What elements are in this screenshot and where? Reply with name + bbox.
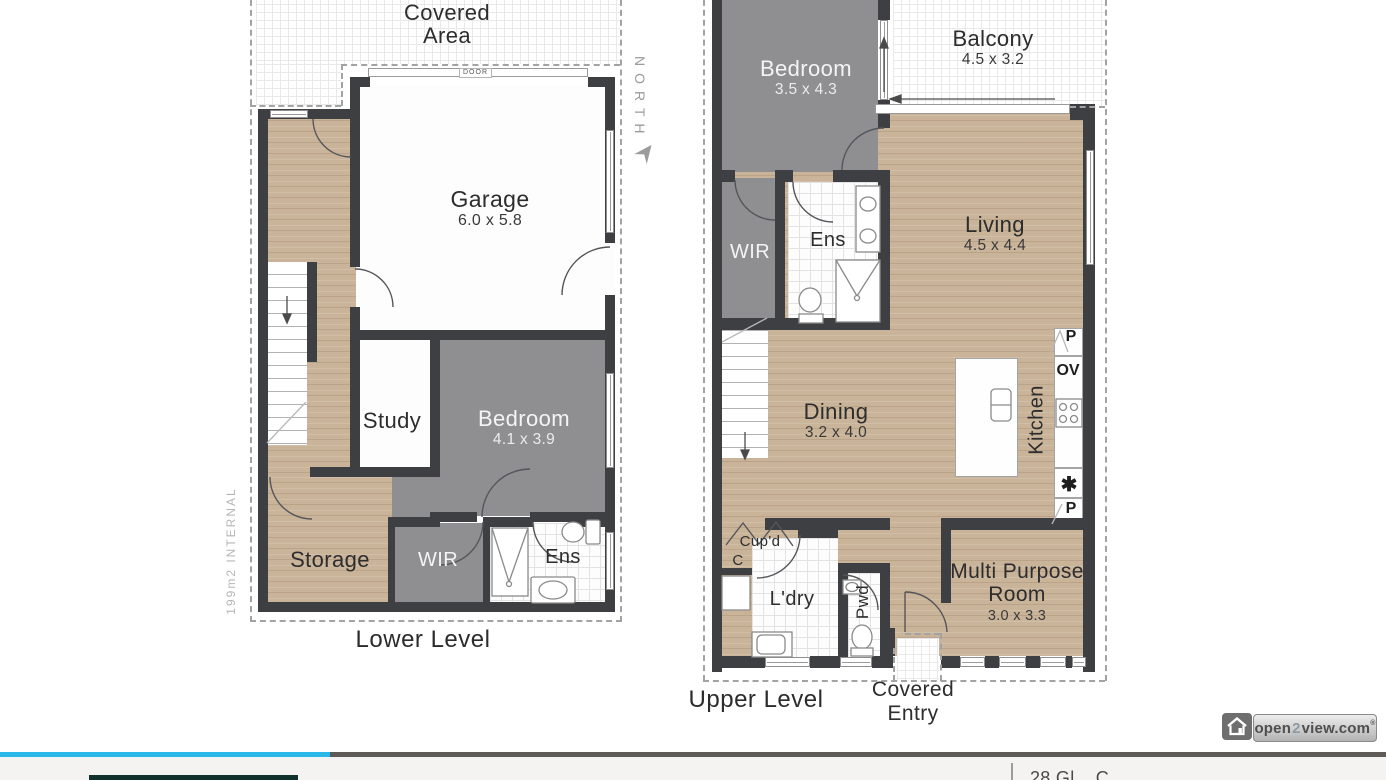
lower-stairs [266, 262, 307, 445]
wall [941, 656, 960, 668]
wall [775, 180, 785, 328]
dashed-boundary [1105, 0, 1107, 681]
powder-label: Pwd [853, 585, 873, 619]
window [999, 657, 1026, 667]
window [1072, 657, 1086, 667]
watermark-prefix: open [1254, 720, 1291, 737]
wall [712, 318, 890, 330]
wall [258, 109, 268, 612]
internal-area-note: 199m2 INTERNAL [224, 487, 238, 614]
wall [878, 170, 890, 330]
lower-ens-label: Ens [545, 546, 581, 569]
window [840, 657, 872, 667]
balcony-dims: 4.5 x 3.2 [962, 51, 1024, 69]
floor-plan-page: Covered Area DOOR Garage 6.0 x 5.8 Study… [0, 0, 1386, 780]
window [606, 373, 614, 468]
multi-purpose-label-2: Room [988, 583, 1046, 607]
wall [798, 528, 838, 538]
wall [390, 517, 440, 527]
lower-bedroom-label: Bedroom [478, 406, 570, 432]
wall [310, 467, 392, 477]
covered-entry-area [897, 638, 939, 681]
wall [258, 602, 615, 612]
upper-wir-label: WIR [730, 241, 770, 264]
dashed-boundary [703, 0, 705, 681]
dashed-boundary [250, 105, 341, 107]
open2view-watermark: open2view.com® [1253, 714, 1377, 742]
window [606, 532, 614, 590]
plan-annotations [0, 0, 1386, 780]
wall [838, 563, 848, 658]
upper-level-title: Upper Level [689, 686, 824, 714]
dashed-boundary [905, 633, 940, 635]
kitchen-island [955, 358, 1018, 477]
oven-label: OV [1056, 362, 1079, 380]
wall [872, 656, 893, 668]
window [270, 110, 308, 118]
study-label: Study [363, 408, 421, 434]
upper-bedroom-dims: 3.5 x 4.3 [775, 81, 837, 99]
covered-entry-label-1: Covered [872, 678, 954, 702]
north-label: NORTH [632, 56, 648, 141]
upper-stairs [722, 318, 768, 458]
wall [1086, 656, 1095, 668]
window [1040, 657, 1066, 667]
room-study [356, 338, 432, 470]
garage-label: Garage [450, 186, 529, 213]
window [960, 657, 985, 667]
garage-door-label: DOOR [459, 68, 492, 78]
dashed-boundary [341, 64, 343, 106]
wall [712, 170, 735, 182]
window [880, 20, 888, 100]
wall [573, 517, 605, 527]
lower-covered-area-column [256, 64, 341, 106]
lower-level-title: Lower Level [356, 626, 491, 654]
dining-dims: 3.2 x 4.0 [805, 424, 867, 442]
dashed-boundary [250, 620, 622, 622]
footer-divider [1011, 763, 1013, 780]
dashed-boundary [893, 648, 895, 681]
balcony-slider-door [875, 104, 1070, 114]
closet-label: C [732, 552, 743, 569]
wall [350, 330, 615, 340]
window [765, 657, 810, 667]
pantry-top-label: P [1066, 328, 1077, 346]
registered-mark: ® [1370, 720, 1375, 727]
living-dims: 4.5 x 4.4 [964, 237, 1026, 255]
wall [985, 656, 999, 668]
wall [1026, 656, 1040, 668]
window [1086, 150, 1094, 265]
upper-bedroom-label: Bedroom [760, 56, 852, 82]
dashed-boundary [1070, 106, 1105, 108]
dashed-boundary [250, 0, 252, 622]
north-arrow-icon [634, 140, 658, 164]
watermark-two: 2 [1291, 720, 1302, 737]
dashed-boundary [341, 64, 620, 66]
address-partial: 28 Gl... C... [1030, 768, 1125, 780]
upper-ens-label: Ens [810, 229, 846, 252]
multi-purpose-label-1: Multi Purpose [950, 560, 1084, 584]
dashed-boundary [620, 0, 622, 622]
multi-purpose-dims: 3.0 x 3.3 [988, 608, 1046, 624]
covered-entry-label-2: Entry [887, 702, 938, 726]
wall [350, 77, 370, 87]
wall [483, 517, 490, 607]
wall [810, 656, 840, 668]
dashed-boundary [940, 633, 942, 681]
lower-wir-label: WIR [418, 549, 458, 572]
footer-brand-block [89, 775, 298, 780]
wall [722, 568, 752, 575]
wall [307, 262, 317, 362]
pantry-bottom-label: P [1066, 500, 1077, 518]
watermark-suffix: view.com [1302, 720, 1371, 737]
wall [430, 340, 440, 467]
wall [878, 0, 890, 20]
storage-label: Storage [290, 547, 370, 573]
wall [941, 518, 1091, 530]
laundry-label: L'dry [770, 588, 815, 611]
window [606, 130, 614, 233]
wall [388, 517, 395, 607]
lower-storage-floor [266, 477, 392, 607]
wall [712, 0, 722, 672]
kitchen-label: Kitchen [1026, 385, 1049, 455]
wall [712, 656, 765, 668]
garage-dims: 6.0 x 5.8 [458, 212, 522, 230]
balcony-label: Balcony [952, 26, 1033, 52]
cupboard-label: Cup'd [740, 533, 781, 550]
open2view-house-icon [1222, 713, 1252, 740]
door-opening [605, 243, 615, 295]
wall [483, 517, 533, 527]
dining-label: Dining [804, 399, 869, 425]
cooktop-symbol: ✱ [1061, 472, 1078, 497]
living-label: Living [965, 212, 1025, 238]
wall [350, 87, 360, 267]
lower-bedroom-dims: 4.1 x 3.9 [493, 431, 555, 449]
covered-area-label-2: Area [423, 23, 471, 49]
